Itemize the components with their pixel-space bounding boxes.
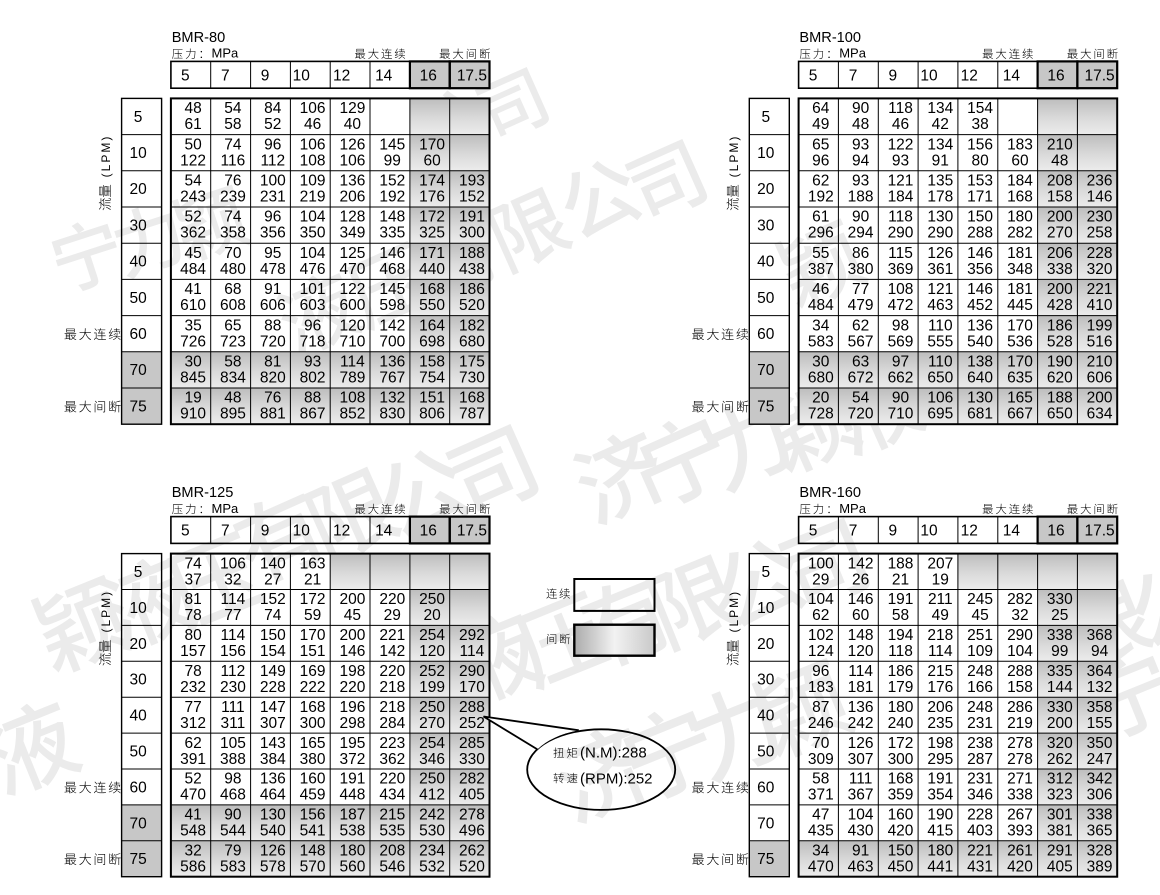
svg-text:235: 235	[927, 715, 953, 732]
svg-text:535: 535	[379, 823, 405, 840]
svg-text:76: 76	[224, 173, 241, 190]
svg-text:608: 608	[220, 297, 246, 314]
svg-text:335: 335	[379, 225, 405, 242]
svg-text:78: 78	[184, 607, 201, 624]
svg-text:270: 270	[1047, 225, 1073, 242]
svg-text:536: 536	[1007, 333, 1033, 350]
svg-text:10: 10	[920, 67, 938, 84]
svg-text:200: 200	[1047, 209, 1073, 226]
svg-text:(LPM): (LPM)	[99, 135, 113, 178]
svg-text:121: 121	[888, 173, 914, 190]
svg-text:393: 393	[1007, 823, 1033, 840]
svg-text:479: 479	[848, 297, 874, 314]
svg-text:17.5: 17.5	[1085, 523, 1115, 540]
svg-text:174: 174	[419, 173, 445, 190]
svg-text:723: 723	[220, 333, 246, 350]
svg-text:230: 230	[1087, 209, 1113, 226]
svg-text:70: 70	[812, 735, 830, 752]
svg-text:496: 496	[459, 823, 485, 840]
svg-text:667: 667	[1007, 406, 1033, 423]
svg-text:420: 420	[1007, 859, 1033, 876]
svg-text:218: 218	[379, 699, 405, 716]
svg-text:50: 50	[757, 744, 775, 761]
svg-text:195: 195	[339, 735, 365, 752]
svg-text:143: 143	[260, 735, 286, 752]
svg-text:330: 330	[459, 751, 485, 768]
svg-text:365: 365	[1087, 823, 1113, 840]
svg-text:38: 38	[971, 116, 988, 133]
svg-text:50: 50	[129, 290, 147, 307]
svg-text:70: 70	[129, 362, 147, 379]
svg-text:74: 74	[224, 209, 242, 226]
svg-text:145: 145	[379, 136, 405, 153]
svg-text:218: 218	[927, 627, 953, 644]
svg-text:338: 338	[1047, 261, 1073, 278]
svg-text:220: 220	[379, 663, 405, 680]
svg-text:158: 158	[1047, 189, 1073, 206]
svg-text:146: 146	[1087, 189, 1113, 206]
svg-text:10: 10	[757, 145, 775, 162]
svg-text:10: 10	[293, 523, 311, 540]
svg-text:65: 65	[812, 136, 829, 153]
svg-text:718: 718	[300, 333, 326, 350]
svg-text:138: 138	[967, 354, 993, 371]
svg-text:96: 96	[812, 663, 829, 680]
svg-text:236: 236	[1087, 173, 1113, 190]
svg-text:99: 99	[1051, 643, 1068, 660]
svg-text:662: 662	[888, 370, 914, 387]
svg-text:200: 200	[1047, 715, 1073, 732]
svg-text:68: 68	[224, 281, 241, 298]
svg-text:155: 155	[1087, 715, 1113, 732]
svg-text:20: 20	[757, 181, 775, 198]
svg-text:7: 7	[221, 67, 230, 84]
svg-text:834: 834	[220, 370, 246, 387]
svg-text:21: 21	[892, 571, 909, 588]
svg-text:10: 10	[129, 600, 147, 617]
svg-text:40: 40	[344, 116, 362, 133]
svg-text:135: 135	[927, 173, 953, 190]
svg-text:70: 70	[757, 362, 775, 379]
svg-text:170: 170	[1007, 317, 1033, 334]
svg-text:58: 58	[224, 116, 241, 133]
svg-text:91: 91	[932, 152, 949, 169]
svg-text:470: 470	[808, 859, 834, 876]
svg-text:463: 463	[927, 297, 953, 314]
svg-text:698: 698	[419, 333, 445, 350]
svg-text:175: 175	[459, 354, 485, 371]
svg-text:192: 192	[808, 189, 834, 206]
svg-text:362: 362	[180, 225, 206, 242]
svg-text:93: 93	[852, 136, 869, 153]
svg-text:121: 121	[927, 281, 953, 298]
svg-text:102: 102	[808, 627, 834, 644]
svg-text:184: 184	[888, 189, 914, 206]
svg-text:430: 430	[848, 823, 874, 840]
svg-text:282: 282	[1007, 225, 1033, 242]
svg-text:169: 169	[300, 663, 326, 680]
svg-text:29: 29	[812, 571, 829, 588]
svg-text:710: 710	[888, 406, 914, 423]
svg-text:720: 720	[260, 333, 286, 350]
svg-text:156: 156	[300, 807, 326, 824]
svg-text:640: 640	[967, 370, 993, 387]
svg-text:10: 10	[757, 600, 775, 617]
svg-text:105: 105	[220, 735, 246, 752]
svg-text:431: 431	[967, 859, 993, 876]
svg-text:231: 231	[260, 189, 286, 206]
svg-text:300: 300	[300, 715, 326, 732]
svg-text:42: 42	[932, 116, 949, 133]
svg-text:54: 54	[224, 100, 242, 117]
svg-text:58: 58	[892, 607, 909, 624]
svg-text:152: 152	[379, 173, 405, 190]
svg-text:114: 114	[460, 643, 485, 660]
svg-text:528: 528	[1047, 333, 1073, 350]
svg-text:104: 104	[848, 807, 874, 824]
svg-text:14: 14	[1003, 523, 1021, 540]
svg-text:130: 130	[967, 390, 993, 407]
svg-text:650: 650	[1047, 406, 1073, 423]
svg-text:586: 586	[180, 859, 206, 876]
svg-text:278: 278	[1007, 735, 1033, 752]
svg-text:48: 48	[184, 100, 201, 117]
svg-text:77: 77	[852, 281, 869, 298]
svg-text:228: 228	[260, 679, 286, 696]
svg-text:122: 122	[888, 136, 914, 153]
svg-text:231: 231	[967, 715, 993, 732]
svg-text:100: 100	[260, 173, 286, 190]
svg-text:47: 47	[812, 807, 829, 824]
svg-text:290: 290	[888, 225, 914, 242]
svg-text:271: 271	[1007, 771, 1033, 788]
svg-text:356: 356	[967, 261, 993, 278]
svg-text:62: 62	[812, 607, 829, 624]
svg-text:5: 5	[181, 67, 190, 84]
svg-text:387: 387	[808, 261, 834, 278]
svg-text:410: 410	[1087, 297, 1113, 314]
svg-text:606: 606	[1087, 370, 1113, 387]
svg-text:MPa: MPa	[212, 501, 240, 516]
svg-text:48: 48	[224, 390, 241, 407]
svg-text:361: 361	[927, 261, 953, 278]
svg-text:484: 484	[808, 297, 834, 314]
svg-text:70: 70	[129, 815, 147, 832]
svg-text:250: 250	[419, 591, 445, 608]
svg-text:40: 40	[757, 254, 775, 271]
svg-text:30: 30	[184, 354, 202, 371]
svg-text:221: 221	[967, 843, 993, 860]
svg-text:7: 7	[849, 67, 858, 84]
svg-text:198: 198	[339, 663, 365, 680]
svg-text:820: 820	[260, 370, 286, 387]
svg-text:154: 154	[260, 643, 286, 660]
svg-text:403: 403	[967, 823, 993, 840]
svg-text:191: 191	[927, 771, 953, 788]
svg-text:187: 187	[339, 807, 365, 824]
svg-text:219: 219	[300, 189, 326, 206]
svg-text:55: 55	[812, 245, 829, 262]
svg-text:BMR-160: BMR-160	[799, 485, 861, 501]
svg-text:541: 541	[300, 823, 326, 840]
svg-text:231: 231	[967, 771, 993, 788]
svg-text:342: 342	[1087, 771, 1113, 788]
svg-text:338: 338	[1007, 787, 1033, 804]
svg-text:325: 325	[419, 225, 445, 242]
svg-text:570: 570	[300, 859, 326, 876]
svg-text:389: 389	[1087, 859, 1113, 876]
svg-text:112: 112	[260, 152, 285, 169]
svg-text:5: 5	[134, 564, 143, 581]
svg-text:30: 30	[812, 354, 830, 371]
svg-text:146: 146	[848, 591, 874, 608]
svg-text:172: 172	[300, 591, 326, 608]
svg-text:278: 278	[459, 807, 485, 824]
svg-text:247: 247	[1087, 751, 1113, 768]
svg-text:228: 228	[967, 807, 993, 824]
svg-text:323: 323	[1047, 787, 1073, 804]
svg-text:99: 99	[384, 152, 401, 169]
svg-text:300: 300	[888, 751, 914, 768]
svg-text:(LPM): (LPM)	[727, 135, 741, 178]
svg-text:154: 154	[967, 100, 993, 117]
svg-text:146: 146	[967, 281, 993, 298]
svg-text:240: 240	[888, 715, 914, 732]
svg-text:75: 75	[757, 398, 774, 415]
svg-text:215: 215	[927, 663, 953, 680]
svg-text:149: 149	[260, 663, 286, 680]
svg-text:93: 93	[852, 173, 869, 190]
svg-text:243: 243	[180, 189, 206, 206]
svg-text:BMR-125: BMR-125	[172, 485, 234, 501]
svg-text:306: 306	[1087, 787, 1113, 804]
svg-text:54: 54	[184, 173, 202, 190]
svg-text:14: 14	[375, 67, 393, 84]
svg-text:54: 54	[852, 390, 870, 407]
svg-text:104: 104	[300, 245, 326, 262]
svg-text:207: 207	[927, 555, 953, 572]
svg-text:165: 165	[1007, 390, 1033, 407]
svg-text:767: 767	[379, 370, 405, 387]
svg-text:600: 600	[339, 297, 365, 314]
svg-text:104: 104	[808, 591, 834, 608]
svg-text:5: 5	[181, 523, 190, 540]
svg-text:134: 134	[927, 100, 953, 117]
svg-text:52: 52	[184, 209, 201, 226]
svg-text:867: 867	[300, 406, 326, 423]
svg-text:182: 182	[459, 317, 485, 334]
svg-text:415: 415	[927, 823, 953, 840]
svg-text:148: 148	[848, 627, 874, 644]
svg-text:17.5: 17.5	[1085, 67, 1115, 84]
svg-text:610: 610	[180, 297, 206, 314]
svg-text:126: 126	[848, 735, 874, 752]
svg-text:188: 188	[459, 245, 485, 262]
svg-text:258: 258	[1087, 225, 1113, 242]
svg-text:254: 254	[419, 735, 445, 752]
svg-text:87: 87	[812, 699, 829, 716]
svg-text:220: 220	[379, 771, 405, 788]
svg-text:680: 680	[459, 333, 485, 350]
svg-text:12: 12	[961, 523, 978, 540]
svg-text:598: 598	[379, 297, 405, 314]
svg-text:168: 168	[888, 771, 914, 788]
svg-text:62: 62	[852, 317, 869, 334]
svg-text:330: 330	[1047, 699, 1073, 716]
svg-text:210: 210	[1087, 354, 1113, 371]
svg-text:532: 532	[419, 859, 445, 876]
svg-text:81: 81	[264, 354, 281, 371]
svg-text:144: 144	[1047, 679, 1073, 696]
svg-text:BMR-100: BMR-100	[799, 30, 861, 46]
svg-text:546: 546	[379, 859, 405, 876]
svg-text:60: 60	[852, 607, 870, 624]
svg-text:199: 199	[1087, 317, 1113, 334]
svg-text:359: 359	[888, 787, 914, 804]
svg-text:170: 170	[300, 627, 326, 644]
svg-text:311: 311	[221, 715, 246, 732]
svg-text:100: 100	[808, 555, 834, 572]
svg-text:179: 179	[888, 679, 914, 696]
svg-text:309: 309	[808, 751, 834, 768]
svg-text:356: 356	[260, 225, 286, 242]
svg-text:583: 583	[808, 333, 834, 350]
svg-text:441: 441	[927, 859, 953, 876]
svg-text:61: 61	[184, 116, 201, 133]
svg-text:115: 115	[888, 245, 913, 262]
svg-text:30: 30	[129, 672, 147, 689]
svg-text:16: 16	[1047, 523, 1064, 540]
svg-text:122: 122	[180, 152, 206, 169]
svg-text:5: 5	[134, 109, 143, 126]
svg-text:120: 120	[848, 643, 874, 660]
svg-text:191: 191	[459, 209, 485, 226]
svg-text:188: 188	[1047, 390, 1073, 407]
svg-text:176: 176	[927, 679, 953, 696]
svg-text:74: 74	[224, 136, 242, 153]
svg-text:349: 349	[339, 225, 365, 242]
svg-text:91: 91	[264, 281, 281, 298]
svg-text:7: 7	[849, 523, 858, 540]
svg-text:459: 459	[300, 787, 326, 804]
svg-text:620: 620	[1047, 370, 1073, 387]
svg-text:754: 754	[419, 370, 445, 387]
svg-text:650: 650	[927, 370, 953, 387]
svg-text:14: 14	[375, 523, 393, 540]
svg-text:284: 284	[379, 715, 405, 732]
svg-text:381: 381	[1047, 823, 1073, 840]
svg-text:267: 267	[1007, 807, 1033, 824]
svg-text:16: 16	[420, 523, 437, 540]
svg-text:109: 109	[300, 173, 326, 190]
svg-text:17.5: 17.5	[457, 67, 487, 84]
svg-text:157: 157	[180, 643, 206, 660]
svg-text:171: 171	[419, 245, 445, 262]
svg-text:200: 200	[1087, 390, 1113, 407]
svg-text:178: 178	[927, 189, 953, 206]
svg-text:64: 64	[812, 100, 830, 117]
svg-text:251: 251	[967, 627, 993, 644]
svg-text:358: 358	[220, 225, 246, 242]
svg-text:58: 58	[812, 771, 829, 788]
svg-text:41: 41	[184, 281, 201, 298]
svg-text:320: 320	[1087, 261, 1113, 278]
svg-text:132: 132	[1087, 679, 1113, 696]
svg-text:129: 129	[339, 100, 365, 117]
svg-text:287: 287	[967, 751, 993, 768]
svg-text:254: 254	[419, 627, 445, 644]
svg-text:168: 168	[419, 281, 445, 298]
svg-text:165: 165	[300, 735, 326, 752]
svg-text:296: 296	[808, 225, 834, 242]
svg-text:428: 428	[1047, 297, 1073, 314]
svg-text:301: 301	[1047, 807, 1073, 824]
svg-text:369: 369	[888, 261, 914, 278]
svg-text:728: 728	[808, 406, 834, 423]
svg-text:288: 288	[459, 699, 485, 716]
svg-text:10: 10	[293, 67, 311, 84]
svg-text:146: 146	[967, 245, 993, 262]
svg-text:90: 90	[892, 390, 910, 407]
svg-text:MPa: MPa	[212, 46, 240, 61]
svg-text:156: 156	[967, 136, 993, 153]
svg-text:104: 104	[1007, 643, 1033, 660]
svg-text:405: 405	[1047, 859, 1073, 876]
svg-text:132: 132	[379, 390, 405, 407]
svg-text:62: 62	[812, 173, 829, 190]
svg-text:298: 298	[339, 715, 365, 732]
svg-text:52: 52	[264, 116, 281, 133]
svg-text:32: 32	[224, 571, 241, 588]
svg-text:81: 81	[184, 591, 201, 608]
svg-text:787: 787	[459, 406, 485, 423]
svg-text:307: 307	[260, 715, 286, 732]
svg-text:94: 94	[852, 152, 870, 169]
svg-text:111: 111	[849, 771, 873, 788]
svg-text:578: 578	[260, 859, 286, 876]
svg-text:290: 290	[1007, 627, 1033, 644]
svg-text:126: 126	[260, 843, 286, 860]
svg-text:MPa: MPa	[839, 501, 867, 516]
svg-text:180: 180	[339, 843, 365, 860]
svg-text:282: 282	[1007, 591, 1033, 608]
svg-text:170: 170	[419, 136, 445, 153]
svg-text:98: 98	[224, 771, 241, 788]
svg-text:9: 9	[261, 67, 270, 84]
svg-text:142: 142	[379, 317, 405, 334]
svg-text:371: 371	[808, 787, 834, 804]
svg-text:151: 151	[300, 643, 326, 660]
svg-text:95: 95	[264, 245, 281, 262]
svg-text:106: 106	[220, 555, 246, 572]
svg-text:181: 181	[848, 679, 874, 696]
svg-text:10: 10	[129, 145, 147, 162]
svg-text:218: 218	[379, 679, 405, 696]
svg-text:40: 40	[129, 708, 147, 725]
svg-text:234: 234	[419, 843, 445, 860]
svg-text:186: 186	[1047, 317, 1073, 334]
svg-text:152: 152	[459, 189, 485, 206]
svg-text:448: 448	[339, 787, 365, 804]
svg-text:86: 86	[852, 245, 869, 262]
svg-text:358: 358	[1087, 699, 1113, 716]
svg-text:330: 330	[1047, 591, 1073, 608]
svg-text:186: 186	[888, 663, 914, 680]
svg-text:60: 60	[129, 326, 147, 343]
svg-text:BMR-80: BMR-80	[172, 30, 226, 46]
svg-text:193: 193	[459, 173, 485, 190]
svg-text:90: 90	[852, 100, 870, 117]
